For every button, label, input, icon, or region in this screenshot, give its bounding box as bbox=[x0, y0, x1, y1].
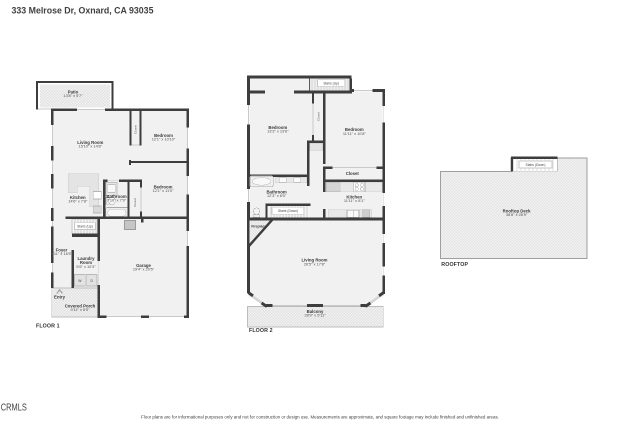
svg-text:ROOFTOP: ROOFTOP bbox=[441, 262, 468, 268]
svg-text:Closet: Closet bbox=[133, 198, 137, 207]
svg-text:Floor plans are for informatio: Floor plans are for informational purpos… bbox=[141, 414, 499, 419]
svg-text:CRMLS: CRMLS bbox=[1, 403, 27, 414]
svg-text:13'3" x 13'8": 13'3" x 13'8" bbox=[267, 128, 289, 133]
svg-text:12'1" x 11'0": 12'1" x 11'0" bbox=[152, 188, 174, 193]
svg-text:11'11" x 10'8": 11'11" x 10'8" bbox=[343, 131, 367, 136]
svg-text:333 Melrose Dr, Oxnard, CA 930: 333 Melrose Dr, Oxnard, CA 93035 bbox=[12, 6, 154, 16]
svg-text:7'10" x 7'9": 7'10" x 7'9" bbox=[107, 198, 127, 203]
svg-text:Stairs (Down): Stairs (Down) bbox=[526, 163, 546, 167]
svg-text:Fireplace: Fireplace bbox=[251, 224, 266, 228]
svg-text:FLOOR 2: FLOOR 2 bbox=[249, 328, 273, 334]
svg-text:38'8" x 26'9": 38'8" x 26'9" bbox=[506, 212, 528, 217]
svg-text:Closet: Closet bbox=[133, 125, 137, 134]
svg-text:Closet: Closet bbox=[316, 112, 320, 121]
svg-text:Closet: Closet bbox=[346, 171, 360, 176]
svg-text:12'1" x 10'10": 12'1" x 10'10" bbox=[152, 137, 176, 142]
svg-text:14'6" x 7'8": 14'6" x 7'8" bbox=[68, 199, 88, 204]
svg-text:11'11" x 8'1": 11'11" x 8'1" bbox=[344, 198, 365, 203]
svg-text:Stairs (Up): Stairs (Up) bbox=[323, 82, 339, 86]
svg-text:FLOOR 1: FLOOR 1 bbox=[36, 324, 60, 330]
svg-text:13'8" x 5'7": 13'8" x 5'7" bbox=[63, 93, 83, 98]
svg-text:12'3" x 6'5": 12'3" x 6'5" bbox=[267, 193, 287, 198]
svg-text:Entry: Entry bbox=[54, 294, 66, 299]
svg-text:5'6" x 10'3": 5'6" x 10'3" bbox=[76, 264, 96, 269]
svg-text:Stairs (Down): Stairs (Down) bbox=[278, 209, 298, 213]
svg-text:15'10" x 14'8": 15'10" x 14'8" bbox=[79, 144, 103, 149]
svg-text:5'11" x 16'5": 5'11" x 16'5" bbox=[51, 251, 73, 256]
svg-text:Stairs (Up): Stairs (Up) bbox=[77, 225, 93, 229]
svg-text:9'11" x 8'5": 9'11" x 8'5" bbox=[71, 307, 91, 312]
svg-text:28'9" x 5'11": 28'9" x 5'11" bbox=[304, 313, 326, 318]
svg-text:19'4" x 20'5": 19'4" x 20'5" bbox=[133, 267, 155, 272]
svg-text:26'5" x 17'8": 26'5" x 17'8" bbox=[304, 261, 326, 266]
